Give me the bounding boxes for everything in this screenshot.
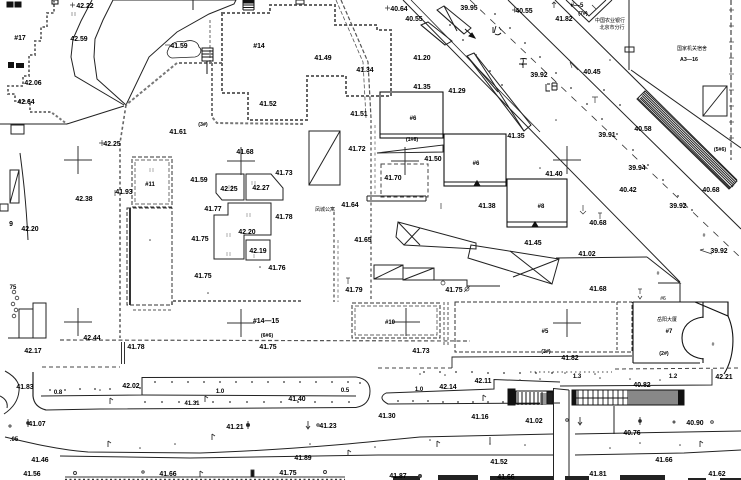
svg-text:40.68: 40.68 <box>589 220 606 227</box>
svg-text:凤城公寓: 凤城公寓 <box>315 206 335 213</box>
svg-text:41.66: 41.66 <box>497 474 514 480</box>
svg-text:0.8: 0.8 <box>54 390 63 396</box>
svg-text:39.92: 39.92 <box>710 248 727 255</box>
svg-text:41.49: 41.49 <box>314 55 331 62</box>
svg-text:41.23: 41.23 <box>319 423 336 430</box>
svg-text:#8: #8 <box>538 204 545 210</box>
svg-text:39.94: 39.94 <box>628 165 645 172</box>
svg-text:41.75: 41.75 <box>259 344 276 351</box>
svg-text:41.21: 41.21 <box>226 424 243 431</box>
svg-text:41.20: 41.20 <box>413 55 430 62</box>
svg-text:1.2: 1.2 <box>669 374 678 380</box>
svg-text:41.02: 41.02 <box>578 251 595 258</box>
svg-text:39.91: 39.91 <box>598 132 615 139</box>
svg-text:42.14: 42.14 <box>439 384 456 391</box>
svg-text:(6#6): (6#6) <box>261 333 274 339</box>
svg-text:北京市分行: 北京市分行 <box>599 24 624 31</box>
svg-text:41.78: 41.78 <box>127 344 144 351</box>
svg-text:39.92: 39.92 <box>530 72 547 79</box>
svg-text:41.64: 41.64 <box>341 202 358 209</box>
svg-text:41.40: 41.40 <box>288 396 305 403</box>
svg-text:#—5: #—5 <box>571 3 584 9</box>
svg-text:41.75: 41.75 <box>279 470 296 477</box>
svg-text:41.50: 41.50 <box>424 156 441 163</box>
svg-text:#6: #6 <box>473 161 480 167</box>
svg-text:41.02: 41.02 <box>525 418 542 425</box>
svg-text:41.66: 41.66 <box>159 471 176 478</box>
svg-text:41.52: 41.52 <box>490 459 507 466</box>
svg-text:41.62: 41.62 <box>708 471 725 478</box>
svg-text:41.59: 41.59 <box>190 177 207 184</box>
svg-text:41.61: 41.61 <box>169 129 186 136</box>
svg-text:41.30: 41.30 <box>378 413 395 420</box>
svg-text:41.75: 41.75 <box>445 287 462 294</box>
svg-text:#: # <box>703 233 706 239</box>
svg-text:42.19: 42.19 <box>249 248 266 255</box>
svg-text:41.56: 41.56 <box>23 471 40 478</box>
svg-text:41.73: 41.73 <box>275 170 292 177</box>
svg-text:41.29: 41.29 <box>448 88 465 95</box>
svg-text:41.40: 41.40 <box>545 171 562 178</box>
svg-text:41.68: 41.68 <box>589 286 606 293</box>
svg-text:41.72: 41.72 <box>348 146 365 153</box>
svg-text:(5#6): (5#6) <box>714 147 727 153</box>
svg-text:40.55: 40.55 <box>405 16 422 23</box>
svg-text:41.93: 41.93 <box>115 189 132 196</box>
svg-text:#: # <box>712 342 715 348</box>
svg-text:41.35: 41.35 <box>413 84 430 91</box>
svg-text:41.51: 41.51 <box>350 111 367 118</box>
svg-text:42.27: 42.27 <box>252 185 269 192</box>
svg-text:(7#): (7#) <box>578 11 588 17</box>
svg-text:41.77: 41.77 <box>204 206 221 213</box>
svg-text:(3#): (3#) <box>541 349 551 355</box>
svg-text:0.5: 0.5 <box>341 388 350 394</box>
svg-text:41.70: 41.70 <box>384 175 401 182</box>
svg-text:41.87: 41.87 <box>389 473 406 480</box>
svg-text:41.46: 41.46 <box>31 457 48 464</box>
svg-text:#14: #14 <box>253 43 265 50</box>
svg-text:42.02: 42.02 <box>122 383 139 390</box>
svg-text:40.58: 40.58 <box>634 126 651 133</box>
svg-text:#10: #10 <box>385 320 396 326</box>
svg-text:1.0: 1.0 <box>415 387 424 393</box>
svg-text:42.44: 42.44 <box>83 335 100 342</box>
svg-text:A3—16: A3—16 <box>680 57 698 63</box>
svg-text:41.75: 41.75 <box>194 273 211 280</box>
svg-text:41.34: 41.34 <box>356 67 373 74</box>
svg-text:75: 75 <box>10 285 17 291</box>
svg-text:#11: #11 <box>145 182 155 188</box>
svg-text:41.82: 41.82 <box>561 355 578 362</box>
svg-text:42.17: 42.17 <box>24 348 41 355</box>
svg-text:(3#): (3#) <box>198 122 208 128</box>
svg-text:41.65: 41.65 <box>354 237 371 244</box>
svg-text:41.45: 41.45 <box>524 240 541 247</box>
svg-text:40.42: 40.42 <box>619 187 636 194</box>
svg-text:1.0: 1.0 <box>216 389 225 395</box>
svg-text:41.66: 41.66 <box>655 457 672 464</box>
svg-text:40.90: 40.90 <box>686 420 703 427</box>
svg-text:41.59: 41.59 <box>170 43 187 50</box>
svg-text:42.21: 42.21 <box>715 374 732 381</box>
svg-text:.05: .05 <box>10 437 19 443</box>
svg-text:41.07: 41.07 <box>28 421 45 428</box>
svg-text:39.92: 39.92 <box>669 203 686 210</box>
svg-text:42.25: 42.25 <box>220 186 237 193</box>
svg-text:41.78: 41.78 <box>275 214 292 221</box>
svg-text:#: # <box>657 271 660 277</box>
svg-text:42.64: 42.64 <box>17 99 34 106</box>
svg-text:40.45: 40.45 <box>583 69 600 76</box>
svg-text:岳阳大厦: 岳阳大厦 <box>657 316 677 323</box>
svg-text:国家机关宿舍: 国家机关宿舍 <box>677 45 707 52</box>
svg-text:40.68: 40.68 <box>702 187 719 194</box>
svg-text:40.76: 40.76 <box>623 430 640 437</box>
svg-text:中国农业银行: 中国农业银行 <box>595 17 625 24</box>
svg-text:41.83: 41.83 <box>16 384 33 391</box>
svg-text:42.06: 42.06 <box>24 80 41 87</box>
svg-text:42.20: 42.20 <box>21 226 38 233</box>
svg-text:#6: #6 <box>410 116 417 122</box>
svg-text:42.25: 42.25 <box>103 141 120 148</box>
svg-text:41.89: 41.89 <box>294 455 311 462</box>
svg-text:#6: #6 <box>660 296 666 302</box>
svg-text:41.82: 41.82 <box>555 16 572 23</box>
svg-text:42.59: 42.59 <box>70 36 87 43</box>
svg-text:40.64: 40.64 <box>390 6 407 13</box>
svg-text:41.52: 41.52 <box>259 101 276 108</box>
svg-text:41.79: 41.79 <box>345 287 362 294</box>
svg-text:42.38: 42.38 <box>75 196 92 203</box>
svg-text:9: 9 <box>9 221 13 228</box>
svg-text:(1#6): (1#6) <box>406 137 419 143</box>
svg-text:41.16: 41.16 <box>471 414 488 421</box>
svg-text:41.75: 41.75 <box>191 236 208 243</box>
svg-text:41.35: 41.35 <box>507 133 524 140</box>
svg-text:41.73: 41.73 <box>412 348 429 355</box>
svg-text:#7: #7 <box>666 329 673 335</box>
svg-text:40.55: 40.55 <box>515 8 532 15</box>
svg-text:#14—15: #14—15 <box>253 318 279 325</box>
svg-text:41.76: 41.76 <box>268 265 285 272</box>
svg-text:42.20: 42.20 <box>238 229 255 236</box>
svg-text:41.68: 41.68 <box>236 149 253 156</box>
svg-text:(2#): (2#) <box>659 351 669 357</box>
svg-text:41.38: 41.38 <box>478 203 495 210</box>
svg-text:41.81: 41.81 <box>589 471 606 478</box>
svg-text:41.31: 41.31 <box>184 401 200 407</box>
svg-text:#5: #5 <box>542 329 549 335</box>
svg-text:40.82: 40.82 <box>633 382 650 389</box>
svg-text:42.11: 42.11 <box>475 378 492 385</box>
svg-text:1.3: 1.3 <box>573 374 582 380</box>
svg-text:#17: #17 <box>14 35 26 42</box>
svg-text:42.22: 42.22 <box>76 3 93 10</box>
svg-text:39.95: 39.95 <box>460 5 477 12</box>
